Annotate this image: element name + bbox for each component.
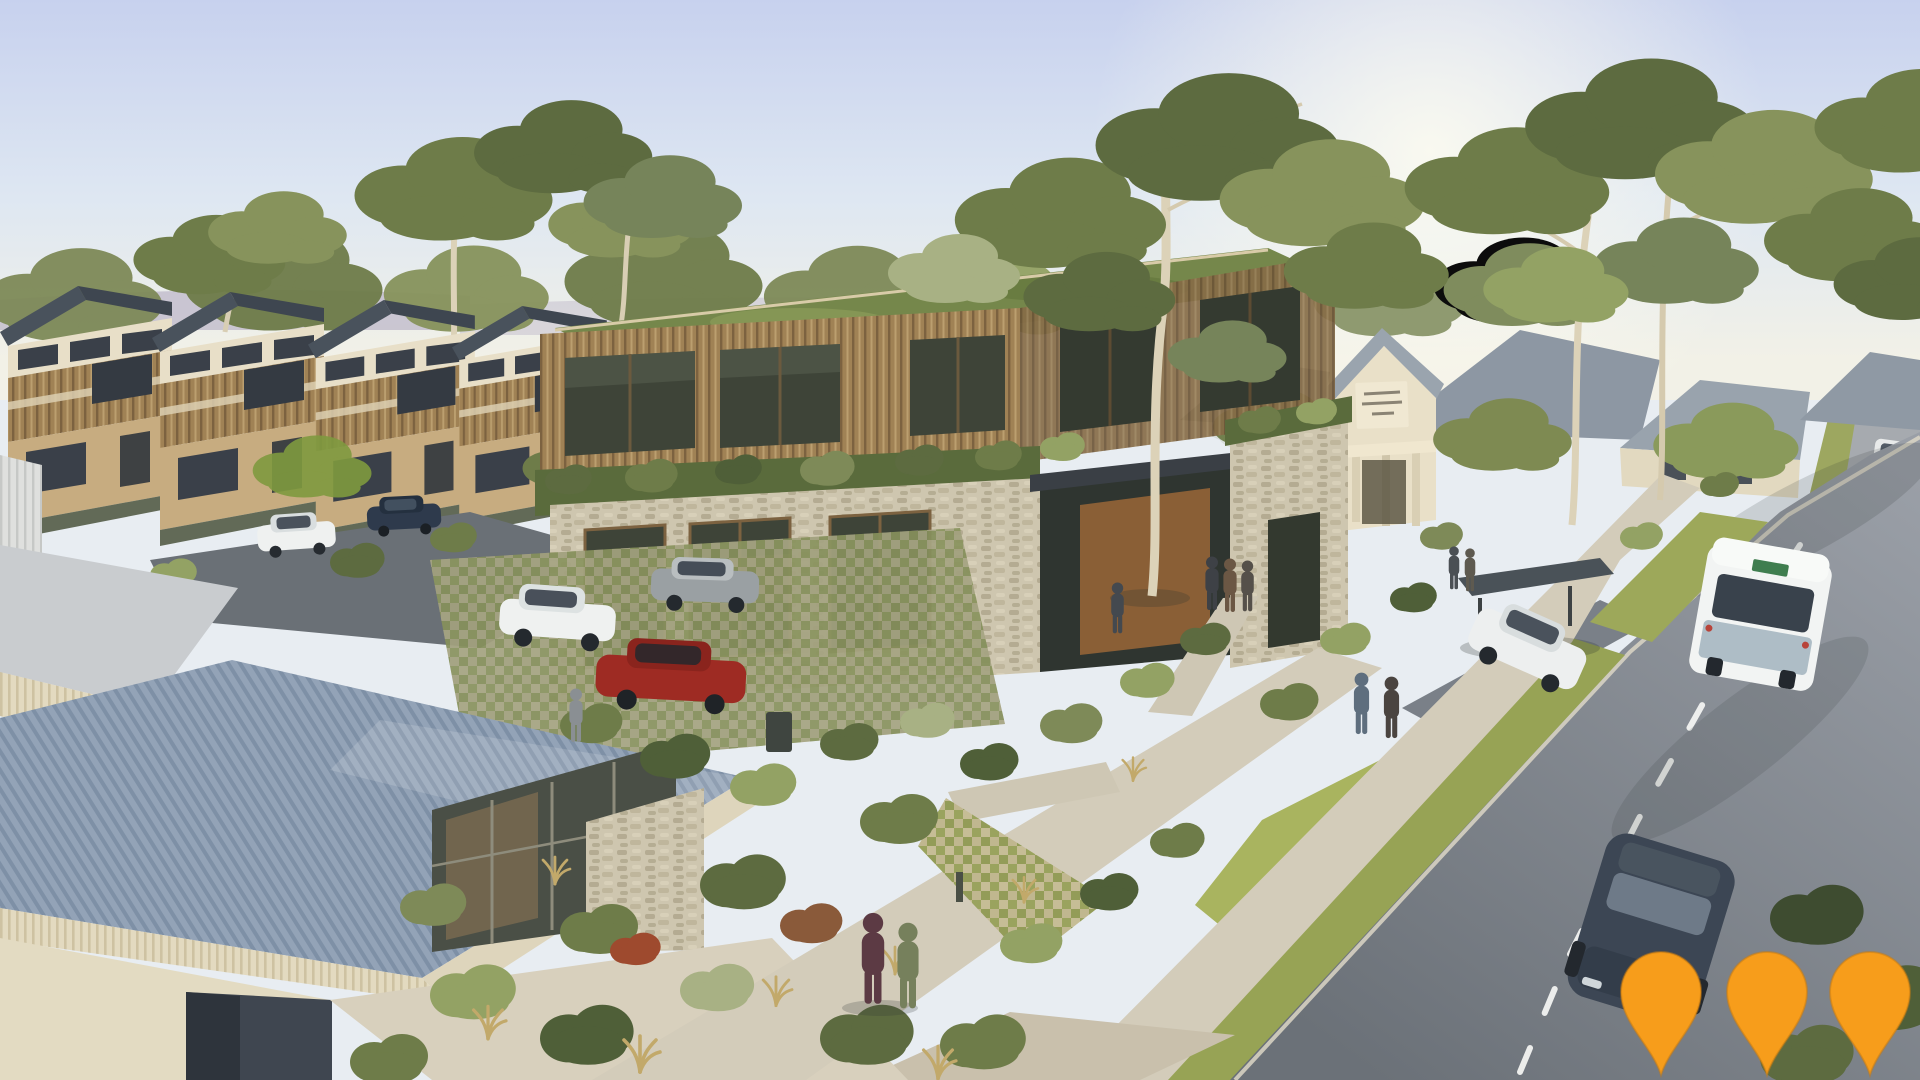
pedestrian <box>1449 546 1460 589</box>
hall-portico-column <box>1412 450 1420 526</box>
shelter-post <box>1568 586 1572 626</box>
hall-doorway <box>1362 460 1406 524</box>
pedestrian <box>1384 677 1399 739</box>
architectural-render <box>0 0 1920 1080</box>
bus <box>1687 535 1835 693</box>
letterbox <box>766 712 792 752</box>
corner-opening-shadow <box>186 992 240 1080</box>
hall-sign <box>1355 381 1409 429</box>
map-pins <box>1621 952 1910 1075</box>
bollard <box>956 872 963 902</box>
portal-door <box>1268 512 1320 648</box>
pedestrian <box>1354 673 1369 735</box>
hall-portico-column <box>1352 446 1360 522</box>
